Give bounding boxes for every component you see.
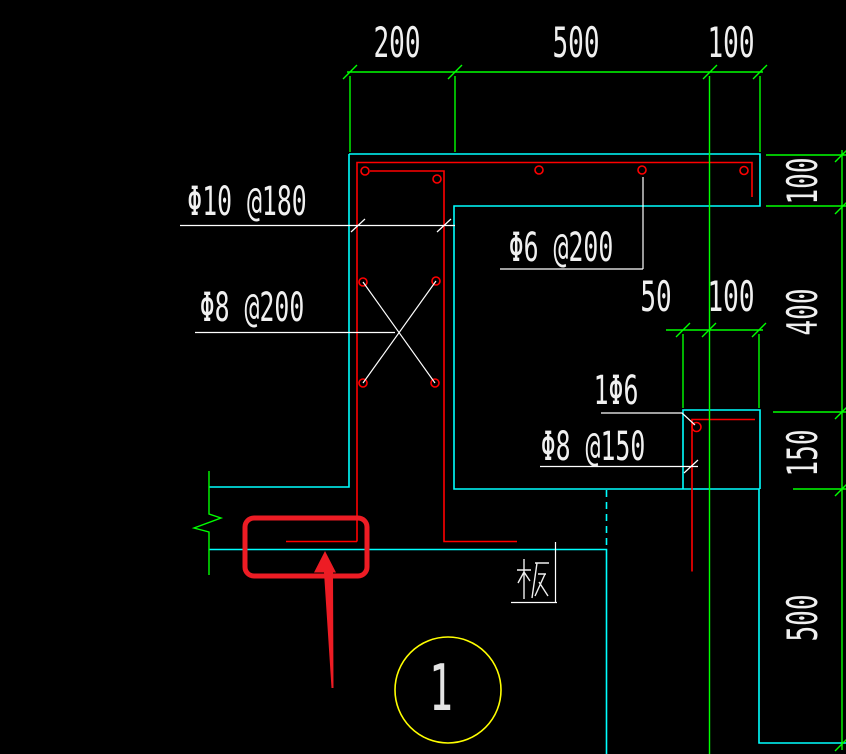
label-bracket-bar: 1Φ6 [594,371,639,411]
rebar-lines [286,163,755,572]
label-bracket-stirrups: Φ8 @150 [541,427,646,467]
bracket-extension-lines [683,334,759,408]
dim-right-500: 500 [782,594,824,641]
highlight-box [245,518,367,576]
dim-right-100: 100 [782,157,824,204]
rebar-bracket-bar [692,420,755,572]
right-dimension-ticks [835,148,846,751]
outline-bracket [683,410,760,489]
dim-bracket-50: 50 [640,276,671,318]
highlight-arrow [314,551,336,688]
dim-top-100: 100 [707,22,754,64]
dim-right-150: 150 [782,429,824,476]
section-marker-number: 1 [429,657,453,721]
drawing-linework [0,0,846,754]
dim-right-400: 400 [782,288,824,335]
slab-label [516,556,550,606]
label-wall-ties: Φ8 @200 [200,288,305,328]
dim-top-200: 200 [373,22,420,64]
slab-char-glyph [516,556,550,602]
dim-top-500: 500 [552,22,599,64]
dim-bracket-100: 100 [707,276,754,318]
highlight-annotation [245,518,367,688]
label-wall-vertical-bars: Φ10 @180 [187,182,306,222]
top-extension-lines [350,76,760,152]
label-flange-bars: Φ6 @200 [509,228,614,268]
cad-structural-section-drawing: 200 500 100 50 100 100 400 150 500 Φ10 @… [0,0,846,754]
